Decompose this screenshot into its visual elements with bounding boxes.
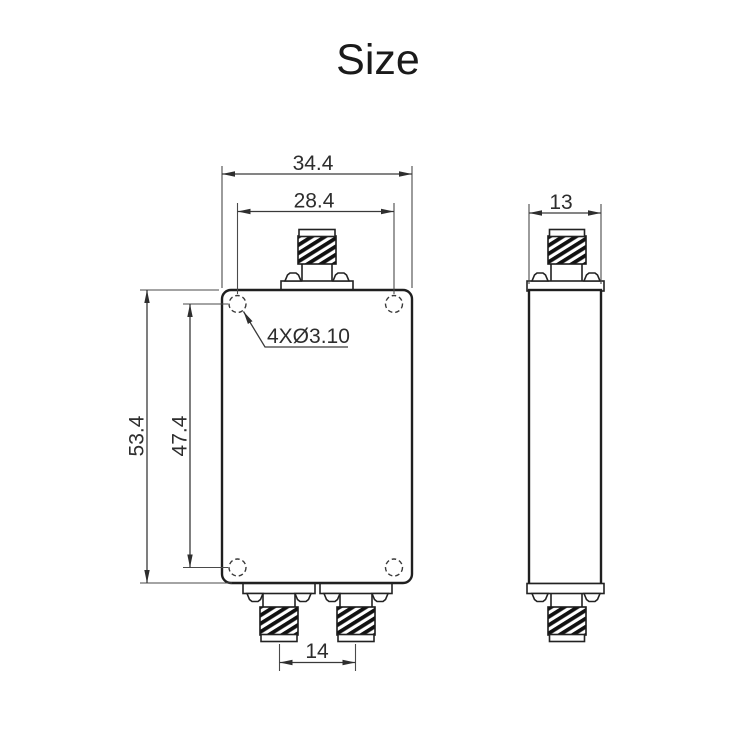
dim-front-hole-spacing-v: 47.4 [169, 304, 229, 568]
side-view [527, 230, 604, 642]
sma-bl-mount-bump-right [295, 594, 311, 602]
sma-br-neck [340, 592, 372, 608]
sma-bl-cap [261, 635, 297, 642]
sma-connector-top [281, 230, 353, 292]
sma-bl-flange [243, 584, 315, 594]
side-sma-top-cap [550, 230, 585, 237]
sma-bl-thread [260, 607, 298, 635]
dim-14-label: 14 [305, 640, 329, 663]
sma-connector-bottom-left [243, 584, 315, 642]
front-view [222, 230, 412, 642]
sma-bl-mount-bump-left [247, 594, 263, 602]
side-sma-bottom-cap [550, 635, 585, 642]
sma-br-mount-bump-right [372, 594, 388, 602]
side-sma-bottom-neck [551, 592, 582, 608]
sma-top-cap [299, 230, 335, 237]
sma-top-mount-bump-left [285, 273, 301, 281]
sma-br-mount-bump-left [324, 594, 340, 602]
side-sma-connector-bottom [527, 584, 604, 642]
sma-connector-bottom-right [320, 584, 392, 642]
dim-front-connector-spacing: 14 [280, 640, 356, 671]
side-sma-bottom-mount-bump-right [584, 594, 600, 602]
sma-br-flange [320, 584, 392, 594]
side-view-body [529, 290, 601, 584]
page-title: Size [336, 36, 420, 84]
size-drawing-page: Size [0, 0, 750, 750]
side-sma-bottom-mount-bump-left [532, 594, 548, 602]
sma-top-thread [298, 236, 336, 264]
dimension-drawing: Size [0, 0, 750, 750]
dim-53-label: 53.4 [126, 415, 149, 456]
side-sma-top-neck [551, 263, 582, 282]
dim-47-label: 47.4 [169, 415, 192, 456]
dim-28-label: 28.4 [294, 190, 335, 213]
sma-br-cap [338, 635, 374, 642]
side-sma-bottom-flange [527, 584, 604, 594]
sma-bl-neck [263, 592, 295, 608]
dim-13-label: 13 [549, 191, 572, 214]
sma-top-mount-bump-right [333, 273, 349, 281]
side-sma-bottom-thread [548, 607, 586, 635]
side-sma-top-mount-bump-left [532, 273, 548, 281]
side-sma-top-thread [548, 236, 586, 264]
hole-callout-label: 4XØ3.10 [267, 325, 350, 348]
sma-br-thread [337, 607, 375, 635]
side-sma-connector-top [527, 230, 604, 292]
side-sma-top-mount-bump-right [584, 273, 600, 281]
dim-34-label: 34.4 [293, 152, 334, 175]
sma-top-neck [302, 263, 332, 282]
